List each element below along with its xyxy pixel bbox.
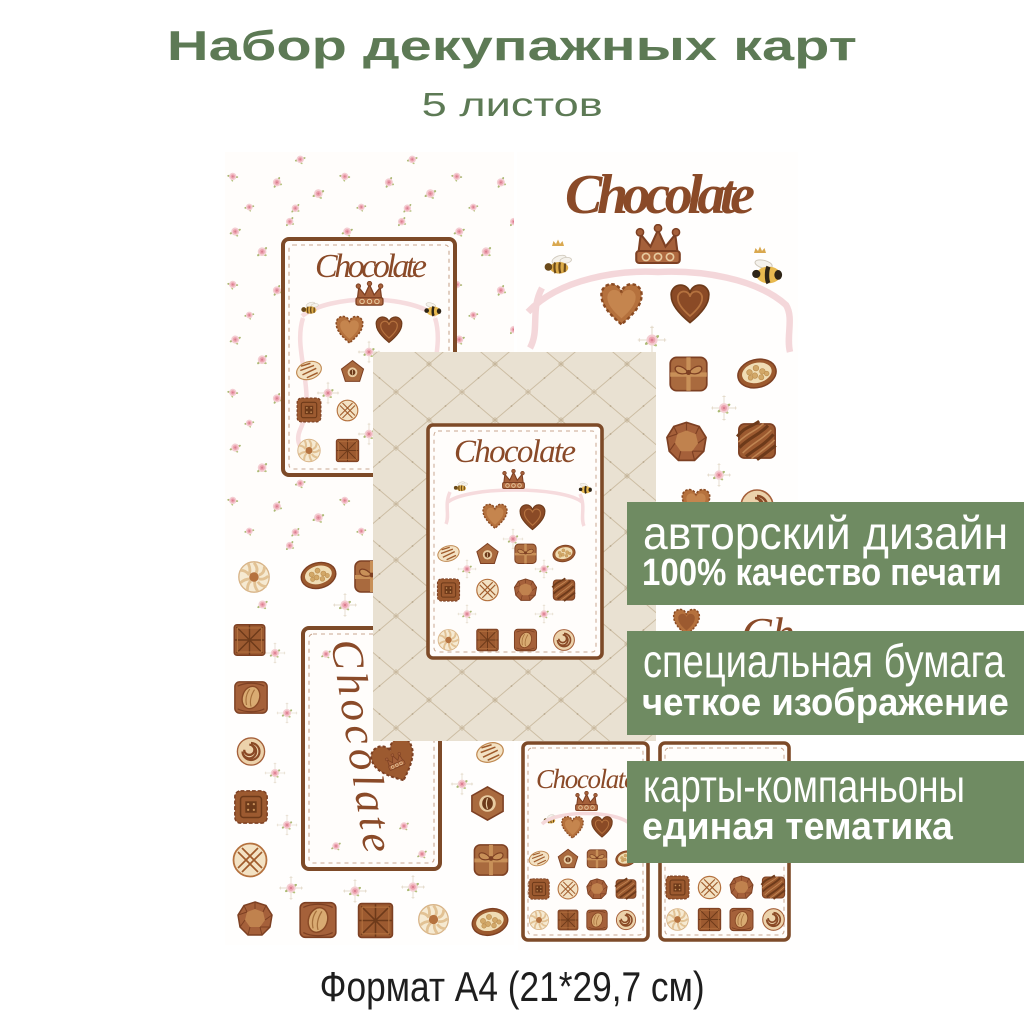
svg-text:Chocolate: Chocolate [536, 764, 636, 794]
svg-text:Chocolate: Chocolate [315, 248, 427, 285]
svg-text:Chocolate: Chocolate [454, 434, 576, 470]
svg-text:Chocolate: Chocolate [565, 164, 755, 226]
